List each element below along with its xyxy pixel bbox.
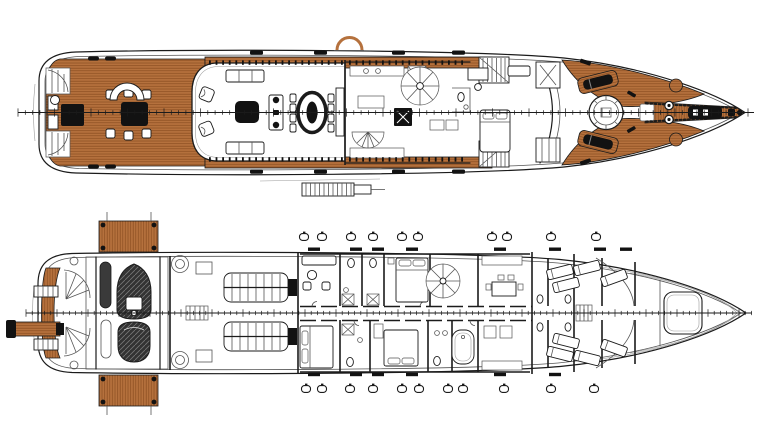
fuel-tank-top [172,256,189,273]
window-mullion [328,157,330,161]
window-mullion [382,157,384,161]
sheer-pill [88,165,99,169]
capstan-top [70,257,78,265]
window-mullion [369,157,371,161]
window-mullion [216,60,218,64]
porthole-latch [321,232,323,234]
bow-teak-pad-bottom [670,133,683,146]
window-mullion [448,157,450,161]
window-mullion [242,60,244,64]
window-mullion [362,157,364,161]
porthole-latch [418,384,420,386]
pantry-unit-2 [446,120,458,130]
deck-box [250,51,263,55]
salon-coffee-table [235,101,259,123]
spiral-stair-lower [426,264,460,298]
window-mullion [229,157,231,161]
window-mullion [301,157,303,161]
window-mullion [209,157,211,161]
porthole [444,386,453,393]
window-mullion [222,157,224,161]
porthole-latch [593,384,595,386]
hull-hatch [406,248,418,251]
window-mullion [315,157,317,161]
generator-top [196,262,212,274]
window-mullion [455,60,457,64]
porthole-latch [401,232,403,234]
window-mullion [428,157,430,161]
galley-counter-top [350,66,404,76]
porthole [547,386,556,393]
window-mullion [268,60,270,64]
window-mullion [282,60,284,64]
window-mullion [275,157,277,161]
porthole [415,386,424,393]
crew-bunks-top [546,260,628,293]
stern-ladder-bottom [34,339,58,350]
window-mullion [301,60,303,64]
porthole [318,386,327,393]
window-mullion [356,60,358,64]
hull-hatch [406,373,418,376]
umbrella [334,38,364,51]
spiral-stair-main [401,67,439,105]
window-mullion [295,157,297,161]
hull-hatch [620,248,632,251]
window-mullion [255,157,257,161]
window-mullion [321,60,323,64]
stern-ladder-top [34,286,58,297]
deck-box [392,51,405,55]
master-stool [475,84,482,91]
day-head [452,88,470,112]
master-bed [480,110,510,152]
passerelle [260,179,385,196]
hull-hatch [549,248,561,251]
porthole [398,386,407,393]
window-mullion [415,60,417,64]
crew-toilet-1 [537,295,543,303]
hull-hatch [372,373,384,376]
window-mullion [321,157,323,161]
aft-side-table [51,96,60,105]
window-mullion [262,157,264,161]
window-mullion [369,60,371,64]
window-mullion [389,60,391,64]
crew-toilet-4 [565,323,571,331]
gangway [6,320,64,338]
window-mullion [262,60,264,64]
lounge-cabin [302,256,336,290]
generator-bottom [196,350,212,362]
engine-port [224,273,297,302]
window-mullion [408,157,410,161]
porthole-latch [350,232,352,234]
window-mullion [402,157,404,161]
elevator-shaft [536,62,560,88]
window-mullion [395,157,397,161]
window-mullion [455,157,457,161]
deck-box [392,170,405,174]
master-sofa [508,66,530,76]
window-mullion [334,157,336,161]
hull-hatch [494,373,506,376]
master-cabin-lower [300,326,333,368]
window-mullion [389,157,391,161]
porthole-latch [303,232,305,234]
hull-hatch [549,373,561,376]
window-mullion [402,60,404,64]
porthole [369,386,378,393]
crew-toilet-2 [537,323,543,331]
window-mullion [308,157,310,161]
porthole [300,234,309,241]
sheer-pill [105,165,116,169]
tender-garage [86,212,168,415]
porthole [488,234,497,241]
porthole [346,386,355,393]
porthole [592,234,601,241]
galley-counter-bottom [350,148,404,158]
window-mullion [282,157,284,161]
aft-bench [61,104,84,126]
window-mullion [415,157,417,161]
window-mullion [268,157,270,161]
window-mullion [308,60,310,64]
master-desk [468,68,488,80]
bathroom-tub [434,330,474,366]
engine-starboard [224,322,297,351]
window-mullion [341,60,343,64]
window-mullion [222,60,224,64]
window-mullion [422,60,424,64]
window-mullion [356,157,358,161]
window-mullion [349,157,351,161]
porthole [347,234,356,241]
porthole-latch [372,232,374,234]
pantry-unit [430,120,444,130]
porthole [459,386,468,393]
window-mullion [375,157,377,161]
window-mullion [435,157,437,161]
crew-mess [482,256,523,296]
stern-locker-bottom [48,115,58,129]
hull-hatch [372,248,384,251]
sheer-pill [88,57,99,61]
deck-box [314,51,327,55]
laundry [482,326,522,370]
porthole-latch [349,384,351,386]
hull-hatch [494,248,506,251]
porthole-latch [506,232,508,234]
porthole-latch [503,384,505,386]
aft-stair-down [352,132,384,148]
window-mullion [235,157,237,161]
lower-deck-plan [6,212,752,415]
yacht-ga-drawing [0,0,768,443]
window-mullion [242,157,244,161]
window-mullion [288,157,290,161]
window-mullion [435,60,437,64]
porthole-row-bottom [302,384,599,393]
window-mullion [441,157,443,161]
kayak [100,262,111,308]
tender-small [118,322,150,362]
main-deck-plan [18,38,754,197]
sideboard [336,88,344,136]
porthole [369,234,378,241]
window-mullion [249,157,251,161]
window-mullion [349,60,351,64]
bathroom-1 [342,258,354,305]
porthole [500,386,509,393]
porthole [590,386,599,393]
porthole-latch [550,384,552,386]
window-mullion [422,157,424,161]
bathroom-3 [342,324,362,367]
bow-teak-pad-top [670,79,683,92]
vip-cabin [388,258,428,302]
hull-hatch [308,248,320,251]
bathroom-2 [367,258,379,305]
window-mullion [341,157,343,161]
porthole-row-top [300,232,601,241]
hull-hatch [350,373,362,376]
hull-hatch [350,248,362,251]
fold-out-platform-bottom [99,375,158,415]
porthole [414,234,423,241]
capstan-bottom [70,361,78,369]
hull-hatch [308,373,320,376]
hull-hatch [594,248,606,251]
porthole [398,234,407,241]
window-mullion [461,60,463,64]
paddleboard [101,320,111,358]
window-mullion [334,60,336,64]
deck-box [452,170,465,174]
porthole-latch [595,232,597,234]
porthole-latch [491,232,493,234]
guest-cabin-2 [374,324,418,366]
window-mullion [375,60,377,64]
crew-toilet-3 [565,295,571,303]
window-mullion [255,60,257,64]
window-mullion [408,60,410,64]
window-mullion [235,60,237,64]
deck-box [250,170,263,174]
porthole [318,234,327,241]
window-mullion [249,60,251,64]
window-mullion [448,60,450,64]
fold-out-platform-top [99,212,158,252]
window-mullion [275,60,277,64]
porthole-latch [417,232,419,234]
window-mullion [382,60,384,64]
window-mullion [295,60,297,64]
porthole-latch [550,232,552,234]
porthole [547,234,556,241]
salon-sofa-top [226,70,264,82]
porthole-latch [462,384,464,386]
galley-appliance [394,108,412,126]
wardrobe [536,138,560,162]
window-mullion [461,157,463,161]
porthole-latch [372,384,374,386]
galley-island [358,96,384,108]
crew-bunks-bottom [546,333,628,366]
window-mullion [362,60,364,64]
window-mullion [229,60,231,64]
porthole-latch [321,384,323,386]
window-mullion [209,60,211,64]
porthole [302,386,311,393]
window-mullion [395,60,397,64]
salon-sofa-bottom [226,142,264,154]
porthole-latch [447,384,449,386]
window-mullion [328,60,330,64]
porthole [503,234,512,241]
fuel-tank-bottom [172,352,189,369]
window-mullion [288,60,290,64]
window-mullion [428,60,430,64]
window-mullion [315,60,317,64]
deck-box [452,51,465,55]
porthole-latch [305,384,307,386]
window-mullion [441,60,443,64]
deck-box [314,170,327,174]
window-mullion [216,157,218,161]
sheer-pill [105,57,116,61]
porthole-latch [401,384,403,386]
